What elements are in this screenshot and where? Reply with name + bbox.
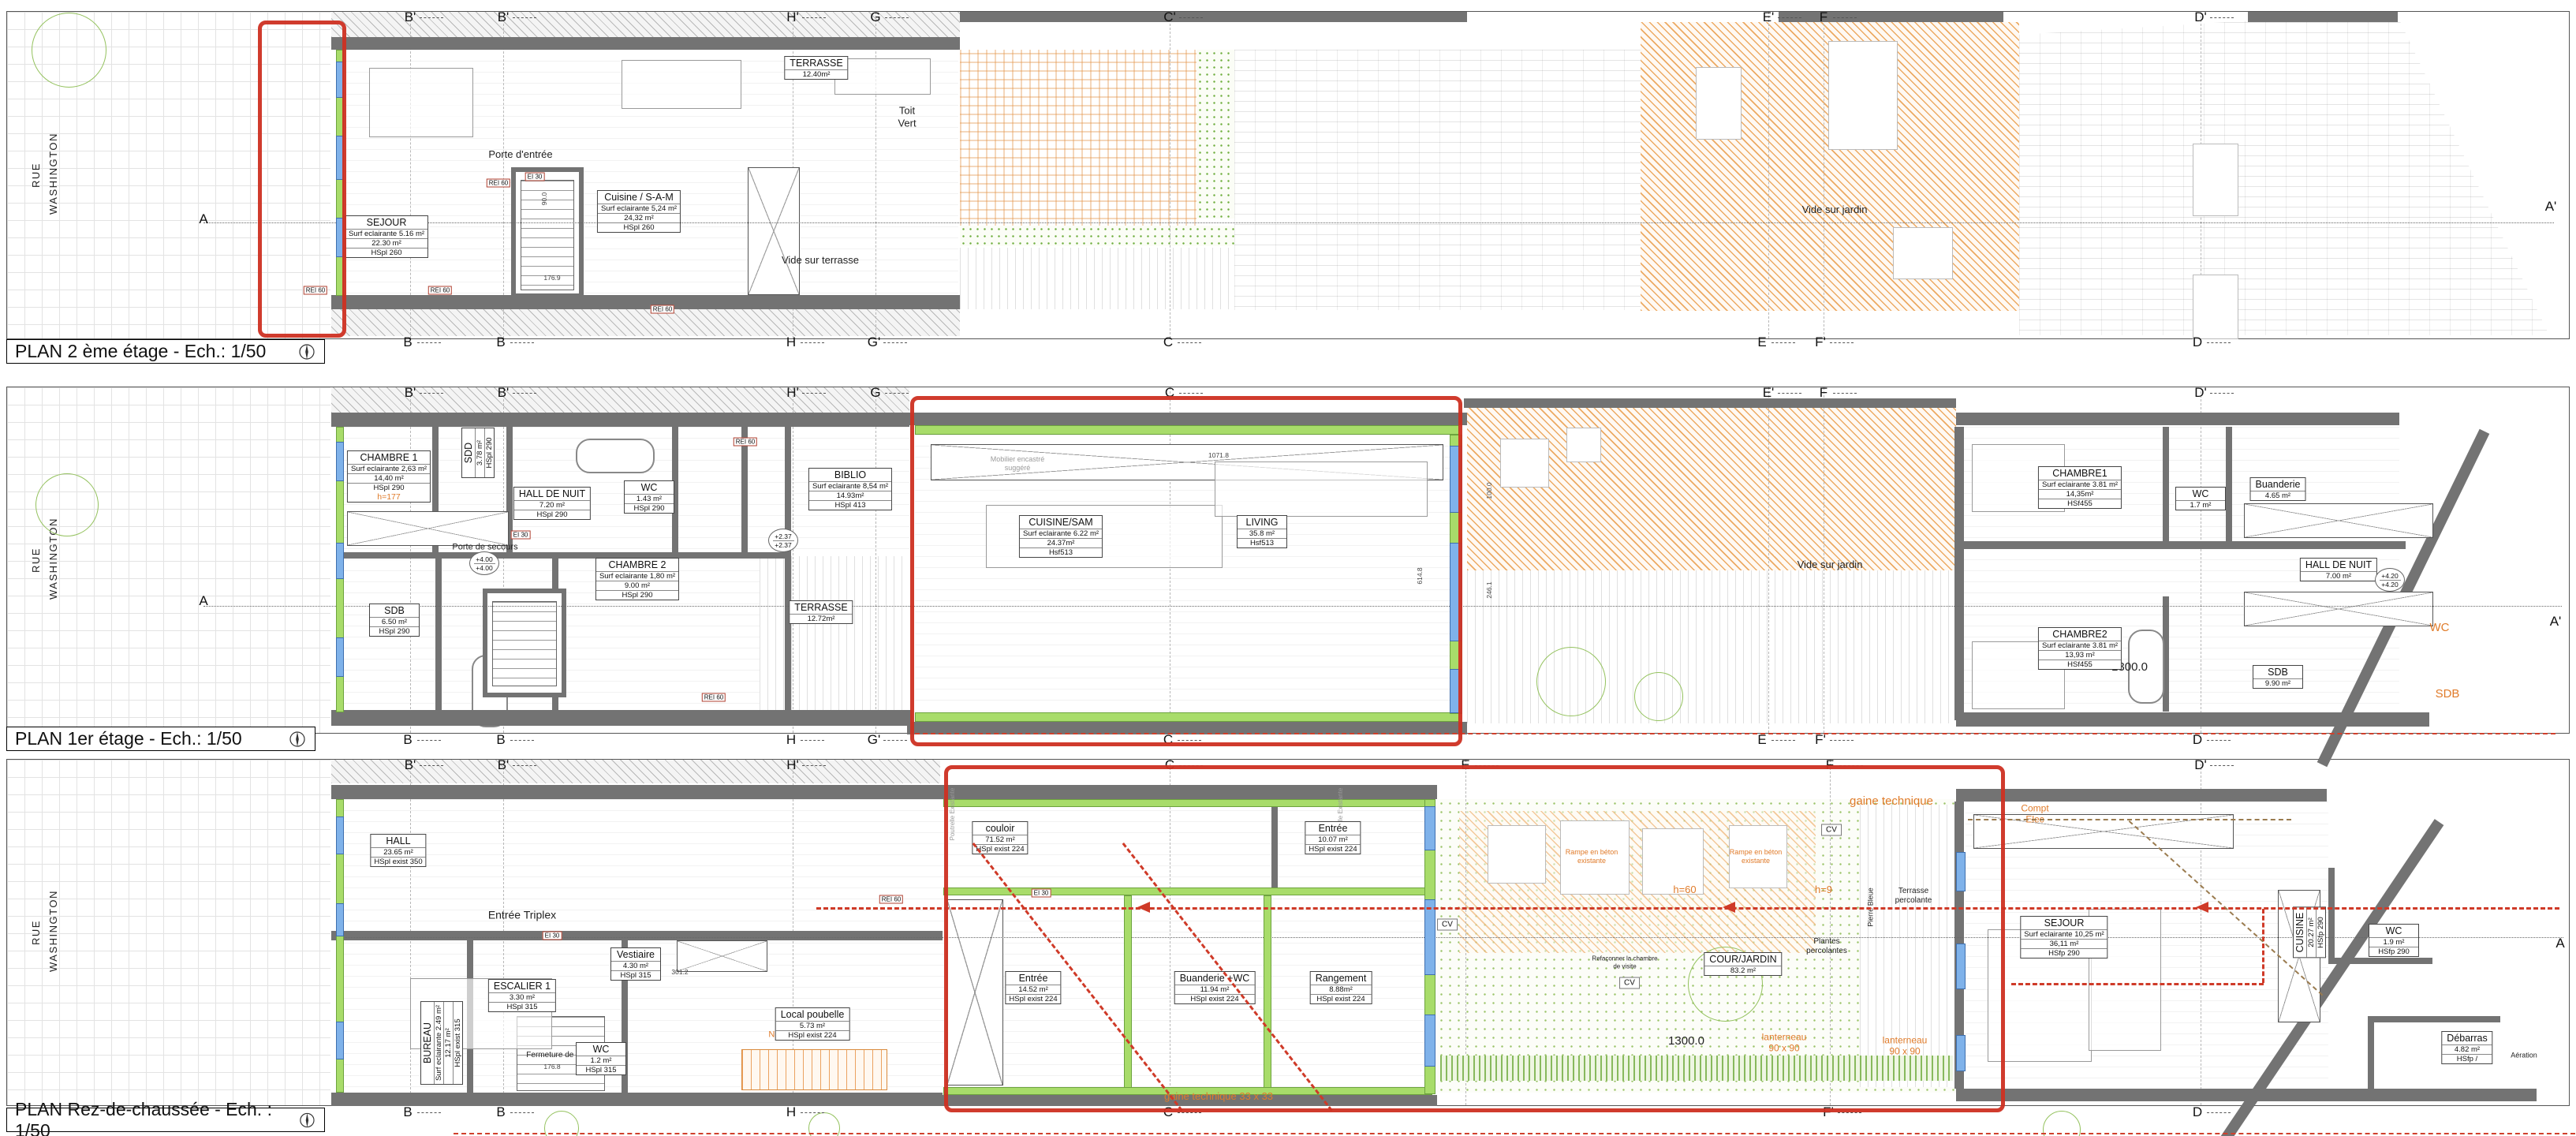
room-label-terrasse: TERRASSE12.72m²	[789, 600, 853, 624]
section-marker: H	[786, 732, 796, 748]
room-stat: Surf eclairante 5,24 m²	[598, 204, 680, 213]
room-stat: 12.17 m²	[443, 1002, 453, 1084]
section-line-a	[203, 222, 2554, 223]
room-stat: HSfp 290	[2021, 948, 2107, 958]
room-label-living: LIVING35.8 m²Hsf513	[1237, 515, 1287, 548]
room-stat: 23.65 m²	[371, 847, 425, 857]
room-label-hall: HALL23.65 m²HSpl exist 350	[370, 834, 426, 867]
furniture	[834, 58, 931, 95]
room-label-chambre-2: CHAMBRE 2Surf eclairante 1,80 m²9.00 m²H…	[595, 558, 679, 600]
wall	[331, 413, 909, 427]
section-marker: B	[403, 334, 412, 350]
inspection-chamber-tag: CV	[1437, 919, 1458, 931]
room-stat: 14.93m²	[809, 491, 891, 500]
room-name: SDB	[2253, 666, 2302, 678]
wall	[1956, 1089, 2537, 1101]
section-line-a	[203, 606, 2562, 607]
room-label-couloir: couloir71.52 m²HSpl exist 224	[972, 821, 1028, 854]
section-marker: B'	[405, 9, 416, 25]
room-label-cuisine-sam: CUISINE/SAMSurf eclairante 6.22 m²24.37m…	[1019, 515, 1103, 558]
room-name: TERRASSE	[785, 57, 847, 69]
room-name: CHAMBRE 1	[348, 451, 430, 464]
annotation: Plantes percolantes	[1798, 937, 1855, 956]
room-stat: 7.20 m²	[514, 500, 590, 510]
window	[336, 218, 344, 257]
section-line	[410, 387, 411, 733]
section-marker: G'	[868, 732, 880, 748]
window	[1956, 1035, 1966, 1071]
level-value: +4.00	[476, 564, 493, 572]
room-name: CHAMBRE 2	[596, 559, 678, 571]
section-marker: A'	[2550, 614, 2562, 630]
roof-opening	[2193, 275, 2238, 339]
annotation: Aération	[2511, 1052, 2537, 1060]
plan-title-floor2: PLAN 2 ème étage - Ech.: 1/50	[6, 339, 325, 364]
room-name: Débarras	[2442, 1032, 2492, 1044]
escape-arrow-icon	[2196, 902, 2208, 913]
room-stat: 4.30 m²	[611, 961, 660, 970]
dimension: 246.1	[1485, 581, 1493, 598]
window	[336, 816, 344, 854]
room-stat: 8.88m²	[1311, 985, 1372, 994]
section-marker: D	[2193, 732, 2202, 748]
annotation: WC	[2430, 621, 2450, 635]
dimension: 176.8	[543, 1063, 560, 1071]
window	[1450, 446, 1462, 513]
window	[336, 442, 344, 481]
section-line	[875, 387, 876, 733]
room-stat: HSpl 290	[596, 590, 678, 600]
room-stat: HSfp 290	[2369, 947, 2418, 956]
room-stat: 71.52 m²	[973, 835, 1027, 844]
fire-rating-tag: REI 60	[487, 179, 510, 188]
section-marker-dash	[1778, 393, 1801, 394]
furniture	[369, 68, 473, 137]
section-marker: H'	[786, 385, 799, 401]
room-label-hall-de-nuit: HALL DE NUIT7.20 m²HSpl 290	[513, 487, 591, 520]
planting-strip	[1440, 1056, 1953, 1081]
escape-route-line	[816, 907, 2559, 910]
wall	[2226, 427, 2232, 543]
section-marker: B	[496, 334, 505, 350]
room-stat: 20.27 m²	[2306, 908, 2316, 958]
section-marker-dash	[1178, 740, 1201, 741]
decking	[960, 248, 1234, 309]
neighbour-hatch	[331, 387, 909, 413]
inspection-chamber-tag: CV	[1821, 824, 1842, 836]
section-marker-dash	[2207, 1112, 2231, 1113]
section-marker-dash	[883, 740, 907, 741]
window	[1956, 944, 1966, 989]
room-label-entr-e: Entrée14.52 m²HSpl exist 224	[1005, 971, 1061, 1004]
room-name: WC	[625, 481, 674, 494]
section-marker: B	[496, 732, 505, 748]
section-marker-dash	[885, 17, 909, 18]
wall	[331, 37, 960, 50]
room-stat: 83.2 m²	[1704, 966, 1781, 975]
built-in-cabinet	[2244, 503, 2433, 538]
room-stat: HSfp /	[2442, 1054, 2492, 1063]
annotation: Vide sur terrasse	[782, 254, 859, 267]
wall	[344, 552, 790, 559]
room-label-cour-jardin: COUR/JARDIN83.2 m²	[1704, 952, 1782, 976]
section-marker: H'	[786, 9, 799, 25]
tree	[1536, 647, 1606, 716]
annotation: SDB	[2436, 687, 2460, 701]
room-label-bureau: BUREAUSurf eclairante 2.49 m²12.17 m²HSp…	[420, 1001, 463, 1085]
room-stat: HSf455	[2039, 499, 2121, 508]
section-marker-dash	[1771, 342, 1795, 343]
tree	[1634, 672, 1683, 721]
level-value: +2.37	[775, 541, 792, 549]
insulated-wall	[1124, 895, 1132, 1091]
room-label-sdb: SDB9.90 m²	[2253, 665, 2303, 689]
section-marker: A	[199, 211, 207, 227]
room-stat: HSpl exist 315	[453, 1002, 462, 1084]
wall	[1956, 712, 2429, 727]
room-name: Cuisine / S-A-M	[598, 191, 680, 204]
wall	[2368, 1016, 2500, 1022]
roof-opening	[1828, 41, 1898, 150]
annotation: Poutrelle Existante	[949, 788, 957, 841]
wall	[1779, 12, 2003, 22]
room-stat: 35.8 m²	[1238, 529, 1286, 538]
room-stat: Hsf513	[1020, 547, 1102, 557]
furniture	[622, 60, 741, 109]
section-marker: C	[1163, 334, 1173, 350]
room-stat: 12.40m²	[785, 69, 847, 79]
section-marker: F'	[1815, 334, 1826, 350]
section-marker-dash	[1771, 740, 1795, 741]
section-marker-dash	[510, 740, 534, 741]
room-stat: 10.07 m²	[1305, 835, 1360, 844]
room-stat: 14.52 m²	[1006, 985, 1060, 994]
room-stat: 7.00 m²	[2301, 571, 2376, 581]
section-marker-dash	[801, 740, 824, 741]
window	[1424, 899, 1435, 975]
street-label-ground: RUE WASHINGTON	[28, 893, 62, 972]
section-marker: D'	[2194, 9, 2207, 25]
room-stat: Surf eclairante 2.49 m²	[434, 1002, 443, 1084]
window	[1424, 806, 1435, 850]
section-marker: H'	[786, 757, 799, 773]
section-marker-dash	[417, 342, 441, 343]
boundary-red-line	[915, 733, 2555, 734]
section-line	[793, 387, 793, 733]
annotation: Rampe en béton existante	[1563, 848, 1620, 865]
room-stat: 9.00 m²	[596, 581, 678, 590]
section-marker: A	[199, 593, 207, 609]
room-label-entr-e: Entrée10.07 m²HSpl exist 224	[1305, 821, 1361, 854]
window	[336, 637, 344, 677]
window	[336, 62, 344, 98]
room-name: SEJOUR	[2021, 917, 2107, 929]
room-name: HALL DE NUIT	[514, 488, 590, 500]
room-stat: 22.30 m²	[345, 238, 427, 248]
room-stat: 13,93 m²	[2039, 650, 2121, 660]
room-stat: HSpl 413	[809, 500, 891, 510]
room-name: SDD	[462, 428, 475, 477]
built-in-cabinet	[677, 940, 767, 972]
room-stat: HSpl 315	[489, 1002, 555, 1011]
inspection-chamber-tag: CV	[1619, 977, 1640, 989]
fire-rating-tag: REI 60	[702, 693, 726, 702]
room-stat: HSpl 290	[348, 483, 430, 492]
room-stat: 4.82 m²	[2442, 1044, 2492, 1054]
insulated-wall	[943, 799, 1432, 807]
room-name: Entrée	[1006, 972, 1060, 985]
insulated-wall	[915, 712, 1459, 722]
room-stat: Surf eclairante 2,63 m²	[348, 464, 430, 473]
room-label-wc: WC1.7 m²	[2175, 487, 2226, 510]
insulated-wall	[1264, 895, 1271, 1091]
annotation: Compt Elec	[2013, 803, 2057, 826]
fire-rating-tag: EI 30	[1032, 889, 1051, 898]
new-staircase	[741, 1049, 887, 1090]
room-name: Vestiaire	[611, 948, 660, 961]
decking	[1467, 570, 1956, 723]
section-marker: H	[786, 334, 796, 350]
annotation: 1300.0	[1668, 1034, 1704, 1048]
room-stat: HSpl exist 224	[1311, 994, 1372, 1003]
section-marker-dash	[1778, 17, 1801, 18]
room-stat: Surf eclairante 5.16 m²	[345, 229, 427, 238]
section-marker-dash	[1839, 765, 1863, 766]
roof-opening	[2193, 144, 2238, 216]
room-stat: HSfp 290	[2316, 908, 2325, 958]
level-value: +4.20	[2380, 572, 2401, 581]
terrace-paving	[960, 50, 1197, 245]
room-label-vestiaire: Vestiaire4.30 m²HSpl 315	[610, 947, 661, 981]
section-marker: C	[1165, 385, 1174, 401]
room-label-wc: WC1.43 m²HSpl 290	[624, 480, 674, 514]
fire-rating-tag: EI 30	[511, 531, 531, 540]
section-marker-dash	[513, 17, 536, 18]
annotation: Rampe en béton existante	[1727, 848, 1784, 865]
section-line-a	[339, 937, 2563, 938]
room-name: SDB	[370, 604, 419, 617]
annotation: Entrée Triplex	[488, 909, 556, 922]
room-label-terrasse: TERRASSE12.40m²	[784, 56, 848, 80]
room-label-wc: WC1.2 m²HSpl 315	[576, 1042, 626, 1075]
section-marker: E	[1461, 757, 1469, 773]
room-label-d-barras: Débarras4.82 m²HSfp /	[2441, 1031, 2492, 1064]
room-label-rangement: Rangement8.88m²HSpl exist 224	[1310, 971, 1372, 1004]
window	[336, 903, 344, 936]
room-name: COUR/JARDIN	[1704, 953, 1781, 966]
room-name: BIBLIO	[809, 469, 891, 481]
section-marker: C	[1163, 732, 1173, 748]
wall	[2328, 958, 2432, 964]
annotation: Porte d'entrée	[487, 148, 554, 161]
section-marker-dash	[1833, 17, 1857, 18]
wall	[2248, 12, 2398, 22]
plan-title-text: PLAN Rez-de-chaussée - Ech. : 1/50	[15, 1099, 298, 1136]
level-value: +2.37	[773, 532, 794, 541]
section-marker-dash	[417, 1112, 441, 1113]
room-stat: 36,11 m²	[2021, 939, 2107, 948]
roof-opening	[1500, 439, 1549, 488]
section-marker-dash	[2210, 393, 2234, 394]
section-marker-dash	[885, 393, 909, 394]
wall	[331, 931, 943, 940]
section-marker: B	[496, 1104, 505, 1120]
built-in-cabinet	[748, 167, 800, 295]
room-note: h=177	[348, 492, 430, 502]
room-label-escalier-1: ESCALIER 13.30 m²HSpl 315	[488, 979, 556, 1012]
annotation: h=9	[1815, 884, 1832, 896]
room-stat: HSpl 290	[370, 626, 419, 636]
section-marker: G'	[868, 334, 880, 350]
section-marker-dash	[802, 765, 826, 766]
room-name: Local poubelle	[776, 1008, 849, 1021]
fire-rating-tag: REI 60	[879, 895, 903, 904]
tree	[35, 473, 99, 536]
level-value: +4.00	[474, 555, 495, 564]
section-marker-dash	[1178, 342, 1201, 343]
street-label-floor2: RUE WASHINGTON	[28, 136, 62, 215]
furniture	[1215, 461, 1428, 517]
section-marker: F	[1820, 9, 1827, 25]
room-name: HALL DE NUIT	[2301, 559, 2376, 571]
annotation: gaine technique 33 x 33	[1164, 1090, 1273, 1103]
boundary-red-line	[454, 1133, 2575, 1134]
section-marker: E	[1757, 732, 1766, 748]
section-line	[1465, 760, 1466, 1105]
room-stat: HSpl 260	[345, 248, 427, 257]
level-annotation: +2.37+2.37	[768, 529, 798, 552]
room-stat: 3.30 m²	[489, 992, 555, 1002]
room-stat: Surf eclairante 1,80 m²	[596, 571, 678, 581]
room-stat: Surf eclairante 6.22 m²	[1020, 529, 1102, 538]
annotation: lanterneau 90 x 90	[1756, 1032, 1813, 1055]
section-marker: E	[1757, 334, 1766, 350]
roof-surface	[1234, 50, 1641, 310]
section-marker: E'	[1763, 9, 1775, 25]
section-marker: C'	[1163, 9, 1176, 25]
room-stat: Surf eclairante 8,54 m²	[809, 481, 891, 491]
room-stat: 12.72m²	[790, 614, 852, 623]
wall	[1956, 413, 2399, 425]
level-annotation: +4.20+4.20	[2375, 568, 2405, 592]
wall	[960, 12, 1467, 22]
room-name: Buanderie +WC	[1175, 972, 1255, 985]
level-value: +4.20	[2381, 581, 2399, 589]
room-stat: 3.78 m²	[475, 428, 484, 477]
room-stat: HSpl exist 224	[1006, 994, 1060, 1003]
dimension: 176.9	[543, 274, 560, 282]
room-stat: HSpl 260	[598, 222, 680, 232]
room-label-local-poubelle: Local poubelle5.73 m²HSpl exist 224	[775, 1007, 850, 1041]
annotation: gaine technique	[1850, 794, 1933, 809]
fire-rating-tag: REI 60	[734, 438, 757, 447]
green-roof	[960, 226, 1234, 246]
room-stat: Hsf513	[1238, 538, 1286, 547]
room-name: CUISINE	[2294, 908, 2306, 958]
section-marker: B'	[498, 757, 510, 773]
tree	[32, 13, 106, 88]
insulated-wall	[915, 425, 1459, 435]
demolition-hatch	[1467, 408, 1956, 570]
fire-rating-tag: REI 60	[651, 305, 674, 314]
wall	[907, 413, 1467, 425]
north-compass-icon	[298, 1111, 316, 1130]
section-line	[1768, 12, 1769, 338]
section-marker: D	[2193, 1104, 2202, 1120]
wall	[2328, 868, 2335, 964]
insulated-wall	[943, 887, 1432, 895]
room-stat: Surf eclairante 3.81 m²	[2039, 480, 2121, 489]
room-name: HALL	[371, 835, 425, 847]
section-marker: H	[786, 1104, 796, 1120]
escape-arrow-icon	[1723, 902, 1735, 913]
room-stat: 9.90 m²	[2253, 678, 2302, 688]
room-label-biblio: BIBLIOSurf eclairante 8,54 m²14.93m²HSpl…	[808, 468, 892, 510]
wall	[1464, 398, 1956, 408]
room-label-buanderie: Buanderie4.65 m²	[2250, 477, 2306, 501]
section-marker-dash	[1475, 765, 1499, 766]
room-name: CUISINE/SAM	[1020, 516, 1102, 529]
dimension: 1071.8	[1208, 451, 1229, 459]
window	[336, 136, 344, 180]
dimension: 90.0	[540, 192, 548, 206]
plan-title-floor1: PLAN 1er étage - Ech.: 1/50	[6, 727, 315, 751]
room-label-cuisine: CUISINE20.27 m²HSfp 290	[2293, 907, 2326, 958]
roof-opening	[1893, 227, 1953, 279]
bathtub	[576, 439, 655, 473]
room-name: SEJOUR	[345, 216, 427, 229]
wall	[1956, 789, 2327, 802]
annotation: Vide sur jardin	[1798, 559, 1863, 571]
staircase	[492, 601, 557, 686]
annotation: Vide sur jardin	[1802, 204, 1868, 216]
level-annotation: +4.00+4.00	[469, 551, 499, 575]
room-label-sejour: SEJOURSurf eclairante 5.16 m²22.30 m²HSp…	[345, 215, 428, 258]
wall	[939, 785, 1437, 799]
room-name: couloir	[973, 822, 1027, 835]
room-name: BUREAU	[421, 1002, 434, 1084]
room-label-hall-de-nuit: HALL DE NUIT7.00 m²	[2300, 558, 2377, 581]
section-marker-dash	[1179, 765, 1203, 766]
section-marker-dash	[2210, 765, 2234, 766]
room-label-chambre1: CHAMBRE1Surf eclairante 3.81 m²14,35m²HS…	[2038, 466, 2122, 509]
neighbour-hatch	[331, 12, 960, 37]
dimension: 100.0	[1485, 482, 1493, 499]
section-marker: A'	[2545, 199, 2557, 215]
architectural-plans-sheet: RUE WASHINGTON RUE WASHINGTON RUE WASHIN…	[0, 0, 2576, 1136]
room-stat: 5.73 m²	[776, 1021, 849, 1030]
wall	[331, 1093, 943, 1106]
section-line	[1830, 760, 1831, 1105]
built-in-cabinet	[946, 899, 1003, 1086]
section-marker: F'	[1823, 1104, 1834, 1120]
wall	[2163, 427, 2169, 543]
section-marker-dash	[1833, 393, 1857, 394]
annotation: Refaçonner la chambre de visite	[1592, 955, 1658, 970]
room-stat: HSpl 315	[577, 1065, 625, 1074]
window	[336, 543, 344, 579]
section-marker: D'	[2194, 757, 2207, 773]
room-stat: HSpl exist 224	[776, 1030, 849, 1040]
room-label-sdd: SDD3.78 m²HSpl 290	[461, 428, 495, 478]
section-line	[2201, 760, 2201, 1105]
room-stat: HSpl 290	[625, 503, 674, 513]
room-stat: HSpl 290	[484, 428, 494, 477]
north-compass-icon	[297, 342, 316, 361]
section-marker: D'	[2194, 385, 2207, 401]
room-stat: 4.65 m²	[2251, 491, 2305, 500]
section-marker-dash	[420, 17, 443, 18]
